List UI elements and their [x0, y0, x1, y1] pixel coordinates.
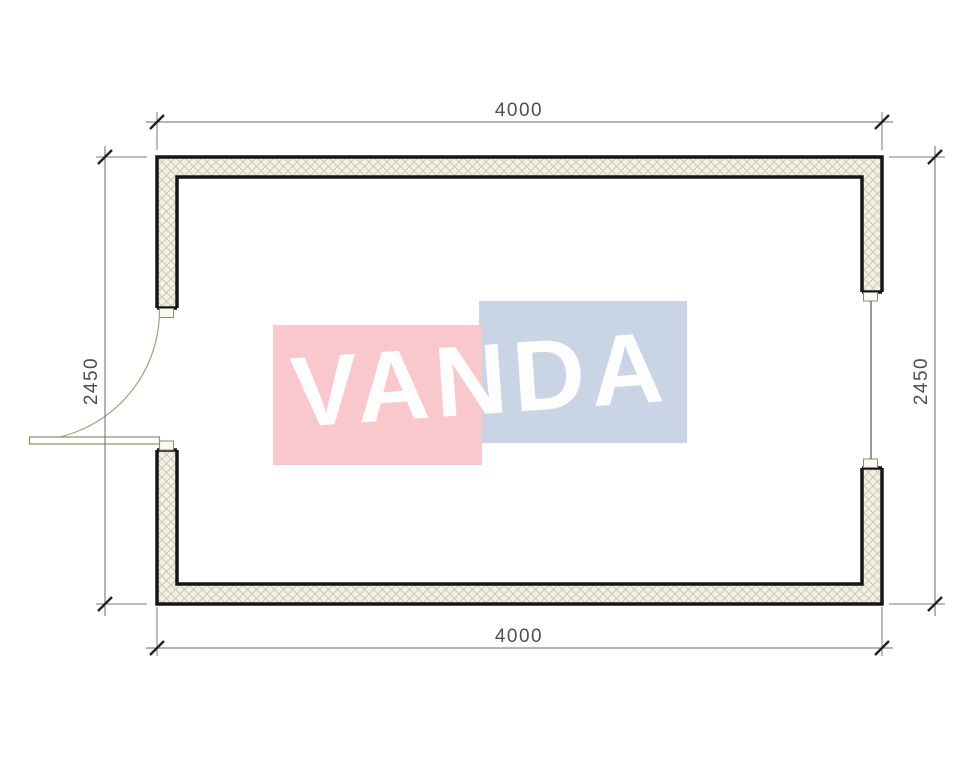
dimension-bottom-label: 4000 — [495, 626, 543, 647]
logo-watermark: VANDA — [273, 301, 687, 465]
door-leaf — [30, 437, 160, 444]
door-jamb-bottom — [160, 441, 174, 450]
window-jamb-top — [864, 293, 878, 302]
dimension-left-label: 2450 — [81, 357, 102, 405]
wall-left-lower — [157, 450, 177, 604]
wall-left-upper — [157, 157, 177, 308]
dimension-top-label: 4000 — [495, 100, 543, 121]
wall-right-upper — [862, 157, 882, 292]
floor-plan-drawing: VANDA — [0, 0, 960, 768]
wall-bottom — [157, 584, 882, 604]
dimension-right-label: 2450 — [911, 357, 932, 405]
wall-right-lower — [862, 468, 882, 604]
window-jamb-bottom — [864, 459, 878, 468]
wall-top — [157, 157, 882, 177]
door-jamb-top — [160, 309, 174, 318]
floor-plan-canvas: VANDA — [0, 0, 960, 768]
